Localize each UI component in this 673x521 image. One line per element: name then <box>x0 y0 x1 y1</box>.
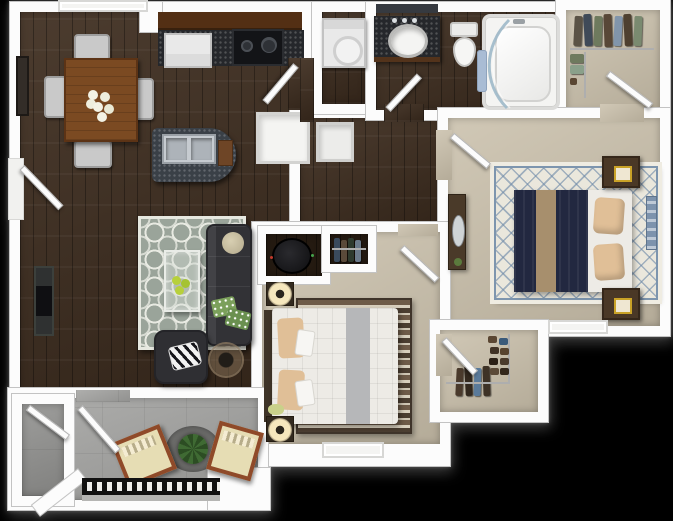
accent-pillow <box>294 379 315 407</box>
hanging-clothes <box>482 366 490 396</box>
potted-plant <box>178 434 208 464</box>
hanging-clothes <box>355 240 361 262</box>
doorway-master-closet <box>600 104 644 122</box>
linen-closet <box>316 122 354 162</box>
pillow <box>593 243 625 281</box>
floral-centerpiece <box>88 90 98 100</box>
dining-table <box>64 58 138 142</box>
bedroom2-bed <box>272 308 398 424</box>
table-lamp <box>268 418 292 442</box>
window <box>322 442 384 458</box>
nightstand <box>602 156 640 188</box>
hanging-clothes <box>613 16 623 46</box>
coffee-table <box>164 250 200 312</box>
oval-sink <box>388 24 428 58</box>
window <box>58 0 148 12</box>
corridor-by-laundry <box>300 58 314 122</box>
hanging-clothes <box>348 238 354 262</box>
closet-rod <box>508 334 510 384</box>
hanging-clothes <box>341 240 347 262</box>
chair-pillow <box>121 435 156 457</box>
dining-chair <box>74 34 110 61</box>
window <box>548 320 608 334</box>
closet-rod <box>332 248 366 250</box>
floor-plan-stage <box>0 0 673 521</box>
cutting-board <box>218 140 233 166</box>
doorway-bedroom2 <box>398 224 438 236</box>
doorway-balcony <box>76 390 130 402</box>
hanging-clothes <box>583 14 593 46</box>
closet-rod <box>584 52 586 98</box>
washer-lid <box>333 36 363 66</box>
round-pillow <box>222 232 244 254</box>
sink-basin <box>191 138 212 160</box>
water-heater <box>272 238 312 274</box>
shoe-stack <box>570 78 577 85</box>
faucet <box>402 18 407 23</box>
small-plant <box>454 258 462 266</box>
master-wall-art <box>646 196 657 250</box>
hanging-clothes <box>623 14 633 46</box>
small-plant <box>268 404 284 415</box>
accent-pillow <box>294 329 315 357</box>
dining-chair <box>74 140 112 168</box>
gold-picture-frame <box>614 298 632 314</box>
dresser <box>448 194 466 270</box>
range-stove <box>232 29 284 66</box>
tub-basin <box>495 26 551 102</box>
closet-rod <box>570 48 654 50</box>
hallway <box>290 108 450 240</box>
double-sink <box>162 134 216 164</box>
apartment-floor-plan <box>0 0 673 521</box>
indicator-light <box>270 256 273 259</box>
vanity-mirror <box>376 4 438 13</box>
bathroom-vanity <box>374 16 440 62</box>
chair-pillow <box>222 430 256 448</box>
sink-basin <box>166 138 187 160</box>
folded-clothes <box>570 54 584 63</box>
bed-runner <box>536 190 556 292</box>
side-table <box>208 342 244 378</box>
hanging-clothes <box>593 16 602 46</box>
bed2-runner <box>346 308 370 424</box>
shoe-rack <box>488 336 497 343</box>
hanging-clothes <box>603 14 612 47</box>
oval-mirror <box>452 215 465 247</box>
master-bed <box>514 190 632 292</box>
washer-dryer <box>322 18 366 68</box>
indicator-light <box>311 254 314 257</box>
closet-rod <box>446 382 510 384</box>
folded-clothes <box>570 65 584 74</box>
pillow <box>593 197 625 235</box>
nightstand <box>602 288 640 320</box>
toilet-tank <box>450 22 478 37</box>
refrigerator <box>164 33 212 68</box>
stove-burners <box>241 40 253 52</box>
railing-ledge <box>82 495 220 501</box>
tub-faucet <box>513 19 525 24</box>
table-lamp <box>268 282 292 306</box>
wall-tv <box>34 266 54 336</box>
hanging-clothes <box>633 16 642 46</box>
green-decor <box>172 276 181 285</box>
upper-cabinets <box>158 12 302 30</box>
hanging-clothes <box>573 16 583 46</box>
gold-picture-frame <box>614 166 632 182</box>
bathtub <box>482 14 560 110</box>
balcony-railing <box>82 478 220 495</box>
towel <box>477 50 487 92</box>
hanging-clothes <box>334 238 340 262</box>
wall-art <box>16 56 29 116</box>
